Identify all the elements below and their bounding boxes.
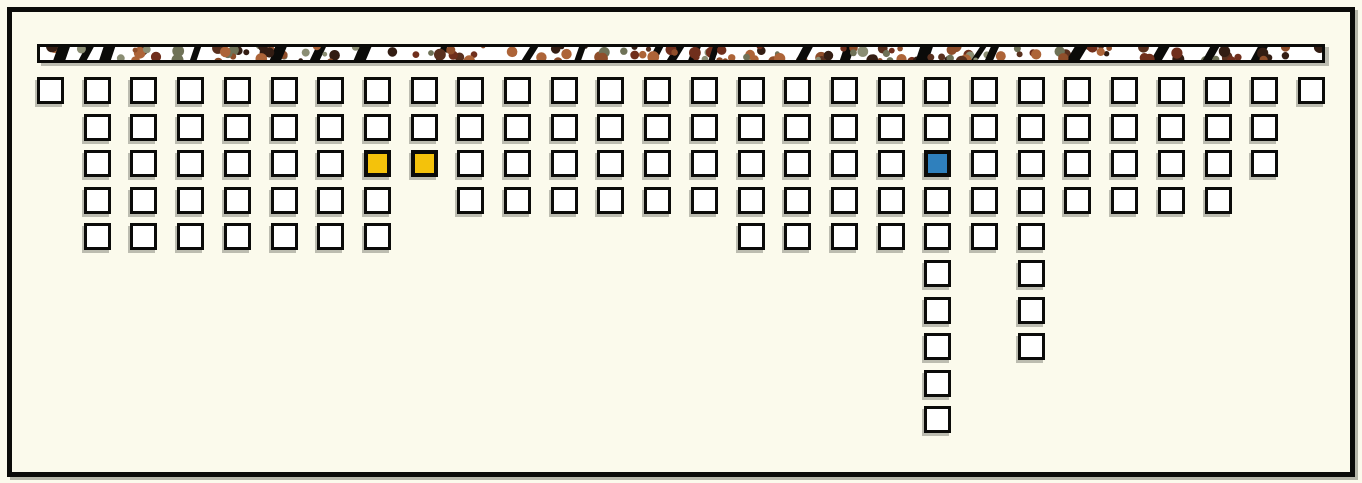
- grid-square: [411, 114, 438, 141]
- grid-square: [784, 150, 811, 177]
- grid-square: [971, 150, 998, 177]
- grid-square: [364, 77, 391, 104]
- grid-square: [924, 297, 951, 324]
- grid-square: [84, 114, 111, 141]
- grid-square: [738, 150, 765, 177]
- grid-square: [504, 150, 531, 177]
- grid-square: [1205, 187, 1232, 214]
- grid-square: [1205, 150, 1232, 177]
- grid-square-blue-highlight: [924, 150, 951, 177]
- grid-square: [831, 223, 858, 250]
- grid-square: [1111, 187, 1138, 214]
- grid-square: [597, 187, 624, 214]
- grid-square: [317, 150, 344, 177]
- grid-square: [1111, 150, 1138, 177]
- grid-square: [457, 77, 484, 104]
- grid-square: [924, 77, 951, 104]
- grid-square: [317, 114, 344, 141]
- grid-square: [831, 150, 858, 177]
- grid-square: [691, 114, 718, 141]
- grid-square: [597, 150, 624, 177]
- grid-square: [924, 370, 951, 397]
- grid-square: [924, 187, 951, 214]
- grid-square: [1251, 150, 1278, 177]
- grid-square: [784, 223, 811, 250]
- grid-square: [551, 187, 578, 214]
- grid-square: [271, 223, 298, 250]
- grid-square: [1064, 150, 1091, 177]
- grid-square: [1251, 77, 1278, 104]
- grid-square: [878, 187, 905, 214]
- grid-square: [1018, 77, 1045, 104]
- grid-square: [504, 114, 531, 141]
- grid-square: [177, 223, 204, 250]
- grid-square: [1018, 297, 1045, 324]
- grid-square: [878, 77, 905, 104]
- grid-square: [504, 187, 531, 214]
- grid-square: [924, 114, 951, 141]
- grid-square: [84, 77, 111, 104]
- grid-square: [457, 187, 484, 214]
- grid-square: [1018, 187, 1045, 214]
- grid-square: [271, 150, 298, 177]
- grid-square: [971, 114, 998, 141]
- grid-square: [971, 223, 998, 250]
- grid-square: [84, 223, 111, 250]
- grid-square: [504, 77, 531, 104]
- grid-square-gold-highlight-2: [411, 150, 438, 177]
- grid-square: [924, 260, 951, 287]
- grid-square: [644, 150, 671, 177]
- grid-square: [457, 150, 484, 177]
- grid-square: [1158, 150, 1185, 177]
- grid-square: [738, 114, 765, 141]
- grid-square: [1251, 114, 1278, 141]
- grid-square: [551, 77, 578, 104]
- grid-square: [177, 114, 204, 141]
- grid-square: [271, 187, 298, 214]
- grid-square: [84, 187, 111, 214]
- grid-square: [551, 114, 578, 141]
- grid-square: [411, 77, 438, 104]
- grid-square: [878, 114, 905, 141]
- grid-square: [130, 187, 157, 214]
- grid-square: [177, 150, 204, 177]
- grid-square: [738, 223, 765, 250]
- grid-square: [1018, 260, 1045, 287]
- grid-square: [691, 187, 718, 214]
- grid-square: [597, 114, 624, 141]
- grid-square: [1018, 223, 1045, 250]
- grid-square: [224, 114, 251, 141]
- grid-square: [224, 187, 251, 214]
- grid-square: [271, 77, 298, 104]
- grid-square: [1111, 114, 1138, 141]
- grid-square: [224, 150, 251, 177]
- grid-square: [1158, 187, 1185, 214]
- grid-square: [130, 77, 157, 104]
- grid-square: [224, 77, 251, 104]
- grid-square: [1064, 114, 1091, 141]
- grid-square: [924, 406, 951, 433]
- grid-square: [924, 333, 951, 360]
- grid-square: [177, 77, 204, 104]
- grid-square: [177, 187, 204, 214]
- squares-grid: [0, 0, 1362, 483]
- grid-square: [644, 114, 671, 141]
- grid-square: [130, 150, 157, 177]
- grid-square: [1205, 77, 1232, 104]
- grid-square: [551, 150, 578, 177]
- grid-square: [364, 187, 391, 214]
- grid-square: [831, 187, 858, 214]
- grid-square: [1111, 77, 1138, 104]
- grid-square: [1158, 114, 1185, 141]
- grid-square: [1018, 150, 1045, 177]
- grid-square: [644, 187, 671, 214]
- grid-square: [1158, 77, 1185, 104]
- grid-square: [691, 150, 718, 177]
- grid-square: [738, 77, 765, 104]
- grid-square: [317, 187, 344, 214]
- grid-square: [971, 187, 998, 214]
- grid-square: [271, 114, 298, 141]
- grid-square: [831, 114, 858, 141]
- grid-square: [878, 223, 905, 250]
- grid-square: [37, 77, 64, 104]
- grid-square: [224, 223, 251, 250]
- grid-square: [364, 114, 391, 141]
- grid-square: [691, 77, 718, 104]
- grid-square: [1018, 114, 1045, 141]
- grid-square: [784, 77, 811, 104]
- grid-square: [84, 150, 111, 177]
- grid-square: [644, 77, 671, 104]
- grid-square: [1298, 77, 1325, 104]
- grid-square: [597, 77, 624, 104]
- grid-square: [317, 77, 344, 104]
- grid-square: [738, 187, 765, 214]
- grid-square: [878, 150, 905, 177]
- grid-square: [364, 223, 391, 250]
- grid-square: [457, 114, 484, 141]
- grid-square: [971, 77, 998, 104]
- grid-square: [1064, 187, 1091, 214]
- grid-square: [130, 223, 157, 250]
- grid-square: [1205, 114, 1232, 141]
- grid-square: [831, 77, 858, 104]
- grid-square: [1064, 77, 1091, 104]
- grid-square: [784, 114, 811, 141]
- grid-square: [924, 223, 951, 250]
- grid-square: [1018, 333, 1045, 360]
- grid-square-gold-highlight-1: [364, 150, 391, 177]
- grid-square: [784, 187, 811, 214]
- grid-square: [130, 114, 157, 141]
- grid-square: [317, 223, 344, 250]
